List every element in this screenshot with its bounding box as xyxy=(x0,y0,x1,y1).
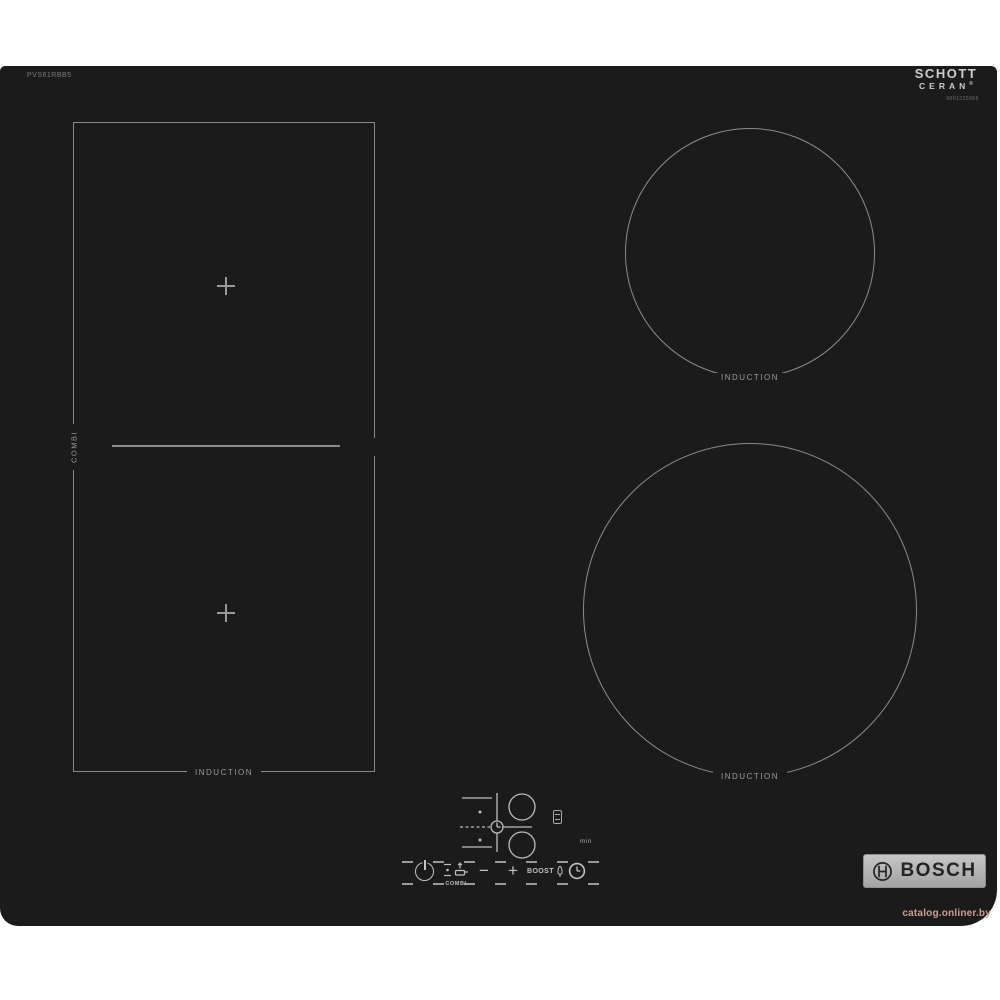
timer-icon xyxy=(568,862,586,880)
pan-icon xyxy=(456,871,465,876)
power-icon xyxy=(415,862,434,881)
power-icon-bar xyxy=(424,860,426,870)
watermark: catalog.onliner.by xyxy=(902,908,991,919)
combi-zone-outline: COMBI INDUCTION xyxy=(73,122,375,772)
combi-zone-divider xyxy=(112,445,340,447)
combi-button-label: COMBI xyxy=(438,881,474,887)
schott-ceran-logo: SCHOTT CERAN® 9001225965 xyxy=(909,67,983,102)
cooktop-surface: PVS61RBB5 SCHOTT CERAN® 9001225965 COMBI… xyxy=(0,66,997,926)
bosch-logo-badge: BOSCH xyxy=(863,854,986,888)
plus-mark-icon xyxy=(217,604,235,622)
registered-mark: ® xyxy=(969,81,973,87)
control-separator-bottom xyxy=(402,883,600,885)
left-bottom-zone-dot xyxy=(479,839,482,842)
glass-serial-number: 9001225965 xyxy=(909,97,983,102)
border-gap xyxy=(372,438,377,456)
zone-indicator-bottom-right xyxy=(509,832,535,858)
induction-label: INDUCTION xyxy=(713,772,787,781)
plus-mark-icon xyxy=(217,277,235,295)
bosch-emblem-icon xyxy=(872,861,893,882)
bosch-logo-text: BOSCH xyxy=(900,860,976,882)
model-number: PVS61RBB5 xyxy=(27,72,72,79)
induction-zone-bottom-right: INDUCTION xyxy=(583,443,917,777)
combi-induction-label: INDUCTION xyxy=(187,768,261,777)
boost-label: BOOST xyxy=(527,868,554,875)
combi-side-label: COMBI xyxy=(70,424,79,470)
plus-icon: + xyxy=(502,860,524,882)
ceran-logo-text: CERAN® xyxy=(909,82,983,91)
minutes-unit-label: min xyxy=(566,838,592,845)
boost-rocket-icon xyxy=(556,866,564,877)
combi-function-icon xyxy=(442,861,470,879)
left-top-zone-dot xyxy=(479,811,482,814)
induction-label: INDUCTION xyxy=(713,373,787,382)
zone-selector-diagram xyxy=(450,786,610,861)
schott-logo-text: SCHOTT xyxy=(909,67,983,81)
lock-icon xyxy=(553,810,562,824)
ceran-word: CERAN xyxy=(919,81,969,91)
zone-indicator-top-right xyxy=(509,794,535,820)
minus-icon: − xyxy=(473,860,495,882)
induction-zone-top-right: INDUCTION xyxy=(625,128,875,378)
boost-control: BOOST xyxy=(527,866,564,877)
